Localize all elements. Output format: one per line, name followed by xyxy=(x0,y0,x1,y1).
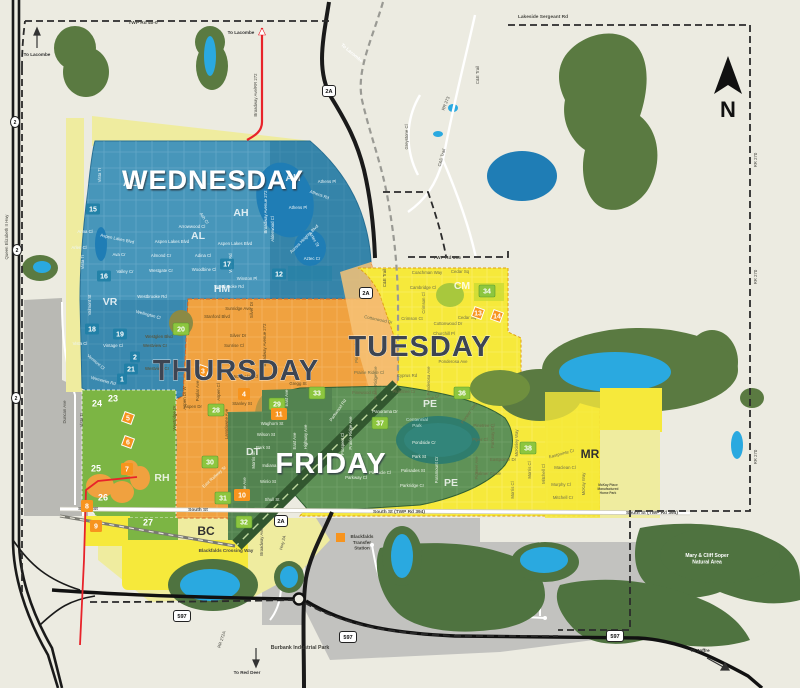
street-label: Arrowwood Cl xyxy=(179,224,206,229)
street-label: Vintage Cl xyxy=(103,343,123,348)
marker-number: 14 xyxy=(493,314,501,321)
street-label: Valmont St xyxy=(87,294,92,316)
street-label: South St (TWP Rd 394) xyxy=(373,509,425,515)
street-label: Silver Dr xyxy=(230,333,247,338)
street-label: Greystone Cl xyxy=(404,124,409,149)
street-label: Murphy Cl xyxy=(551,482,571,487)
street-label: Broadway Ave/RR 272 xyxy=(253,73,258,117)
street-label: Vista Cl xyxy=(73,341,88,346)
marker-number: 17 xyxy=(223,262,231,269)
marker-number: 10 xyxy=(238,493,246,500)
street-label: Plumtree Cr xyxy=(393,389,416,394)
street-label: Mitchell Cl xyxy=(541,464,546,484)
street-label: Park St xyxy=(412,454,427,459)
street-label: Duncan Ave xyxy=(62,400,67,424)
street-label: Sunridge Ave xyxy=(225,306,251,311)
street-label: Westglen Blvd xyxy=(145,334,173,339)
street-label: Stanley St xyxy=(232,401,252,406)
marker-number: 8 xyxy=(85,504,89,511)
street-label: Cambridge Cl xyxy=(410,285,436,290)
street-label: Mitchell Cr xyxy=(553,495,574,500)
street-label: Sunrise Cl xyxy=(224,343,244,348)
place-label: Natural Area xyxy=(692,559,722,565)
street-label: Broadway Ave xyxy=(259,528,264,556)
place-label: Centennial xyxy=(406,417,428,422)
street-label: Parkway Dr xyxy=(490,425,495,448)
area-code-label: PE xyxy=(444,477,458,489)
area-code-label: BC xyxy=(197,524,215,538)
marker-number: 32 xyxy=(240,520,248,527)
street-label: C&E Trail xyxy=(475,66,480,84)
street-label: Ava Cr xyxy=(112,252,126,257)
street-label: Piper Cl xyxy=(472,437,487,442)
street-label: Stanford Blvd xyxy=(204,314,230,319)
marker-number: 38 xyxy=(524,446,532,453)
marker-number: 11 xyxy=(275,412,283,419)
street-label: RR 270 xyxy=(753,269,758,284)
street-label: Adina Cl xyxy=(195,253,211,258)
street-label: Crimson Ct xyxy=(401,316,423,321)
marker-number: 20 xyxy=(177,327,185,334)
street-label: Aztec Cr xyxy=(304,256,321,261)
marker-number: 5 xyxy=(126,416,130,423)
street-label: Westridge Dr xyxy=(172,405,177,431)
street-label: Blackfalds Crossing Way xyxy=(199,548,254,553)
transfer-station-icon xyxy=(336,533,345,542)
marker-number: 30 xyxy=(206,460,214,467)
street-label: Silver Dr xyxy=(249,301,254,318)
street-label: McKay Way xyxy=(581,472,586,496)
street-label: Cyprus Rd xyxy=(397,373,418,378)
street-label: Maclean Cl xyxy=(554,465,576,470)
marker-number: 1 xyxy=(120,377,124,384)
direction-label: To Lacombe xyxy=(228,30,255,35)
street-label: Prairie Ridge Ave xyxy=(373,366,378,400)
marker-number: 33 xyxy=(313,391,321,398)
collection-day-label: WEDNESDAY xyxy=(122,165,304,195)
street-label: RR 270 xyxy=(753,449,758,464)
street-label: Prairie Ridge Ave xyxy=(348,416,353,450)
street-label: Palmer Circle xyxy=(475,471,501,476)
street-label: Almond Cr xyxy=(151,253,172,258)
area-code-label: PE xyxy=(423,398,437,410)
street-label: Woodbine Cl xyxy=(192,267,217,272)
street-label: RR 270 xyxy=(753,152,758,167)
street-label: Panorama Dr xyxy=(372,409,398,414)
street-label: Alderwood Cl xyxy=(270,216,275,242)
marker-number: 7 xyxy=(125,467,129,474)
marker-number: 6 xyxy=(126,440,130,447)
street-label: Pondside Cr xyxy=(412,440,436,445)
street-label: Westview Cr xyxy=(143,343,168,348)
street-label: South St xyxy=(188,507,208,513)
place-label: Transfer xyxy=(353,540,371,545)
street-label: Prairie Ridge Cl xyxy=(354,370,384,375)
street-label: Coachman Way xyxy=(412,270,443,275)
highway-shield-number: 2 xyxy=(15,396,18,402)
compass-label: N xyxy=(720,97,736,122)
street-label: Palisades St xyxy=(401,468,426,473)
area-code-label: HM xyxy=(214,283,231,295)
collection-day-label: THURSDAY xyxy=(153,355,319,387)
street-label: Highway Ave xyxy=(303,424,308,449)
street-label: Valley Cr xyxy=(116,269,134,274)
direction-label: To Red Deer xyxy=(234,670,261,675)
place-label: Park xyxy=(412,423,422,428)
marker-number: 26 xyxy=(98,493,108,503)
marker-number: 12 xyxy=(275,272,283,279)
marker-number: 16 xyxy=(100,274,108,281)
highway-shield-number: 2 xyxy=(14,120,17,126)
street-label: Aspen Lakes Blvd xyxy=(218,241,253,246)
highway-shield-number: 2 xyxy=(16,248,19,254)
marker-number: 23 xyxy=(108,394,118,404)
marker-number: 25 xyxy=(91,464,101,474)
street-label: Aspen Dr W xyxy=(182,385,187,409)
street-label: TWP Rd 40-0 xyxy=(128,20,158,26)
collection-schedule-map: N Vista TrAnna ClArlen ClAspen Lakes Blv… xyxy=(0,0,800,688)
street-label: South St (TWP Rd 394) xyxy=(626,510,678,516)
area-code-label: MR xyxy=(581,447,600,461)
street-label: Vista Tr xyxy=(79,412,84,427)
street-label: Westbrooke Rd xyxy=(137,294,167,299)
place-label: Burbank Industrial Park xyxy=(271,645,330,651)
marker-number: 9 xyxy=(94,524,98,531)
marker-number: 31 xyxy=(219,496,227,503)
area-code-label: RH xyxy=(154,472,169,484)
place-label: Station xyxy=(354,546,370,551)
street-label: Cedar Sq xyxy=(451,269,470,274)
street-label: Athens Pl xyxy=(318,179,336,184)
highway-shield-number: 597 xyxy=(610,634,619,640)
area-code-label: AL xyxy=(191,230,206,242)
area-code-label: AH xyxy=(233,207,248,219)
street-label: Waghorn St xyxy=(261,421,284,426)
map-canvas: N Vista TrAnna ClArlen ClAspen Lakes Blv… xyxy=(0,0,800,688)
place-label: Home Park xyxy=(600,491,617,495)
direction-label: To Joffre xyxy=(690,648,710,653)
street-label: C&E Trail xyxy=(382,269,387,287)
marker-number: 19 xyxy=(116,332,124,339)
highway-shield-number: 2A xyxy=(277,519,284,525)
street-label: Parkridge Cr xyxy=(400,483,425,488)
street-label: Lansdowne Ave xyxy=(224,408,229,439)
marker-number: 2 xyxy=(133,355,137,362)
marker-number: 36 xyxy=(458,391,466,398)
street-label: Shull St xyxy=(265,497,281,502)
highway-shield-number: 2A xyxy=(325,89,332,95)
street-label: Vista Tr xyxy=(80,254,85,269)
street-label: East Ave xyxy=(292,432,297,449)
marker-number: 4 xyxy=(242,392,246,399)
street-label: Ponderosa Ave xyxy=(426,366,431,396)
highway-shield-number: 2A xyxy=(362,291,369,297)
street-label: Lakeside Sergeant Rd xyxy=(518,14,568,20)
street-label: Anna Cl xyxy=(77,229,92,234)
marker-number: 34 xyxy=(483,289,491,296)
street-label: Broadway Avenue 272 xyxy=(263,190,268,234)
marker-number: 21 xyxy=(127,367,135,374)
street-label: Vista Tr xyxy=(97,167,102,182)
street-label: Wilson St xyxy=(257,432,276,437)
marker-number: 27 xyxy=(143,518,153,528)
marker-number: 29 xyxy=(273,402,281,409)
marker-number: 28 xyxy=(212,408,220,415)
marker-number: 15 xyxy=(89,207,97,214)
place-label: Mary & Cliff Soper xyxy=(685,553,728,559)
area-code-label: VR xyxy=(103,296,118,308)
street-label: Athens Pl xyxy=(289,205,307,210)
street-label: Eastpointe Dr xyxy=(490,457,517,462)
street-label: Winlo St xyxy=(260,479,277,484)
street-label: Winston Pl xyxy=(237,276,258,281)
street-label: McKinley Way xyxy=(514,429,519,457)
street-label: Morris Cl xyxy=(527,461,532,478)
highway-shield-number: 597 xyxy=(177,614,186,620)
street-label: TWP Rd 395 xyxy=(433,255,461,261)
collection-day-label: TUESDAY xyxy=(349,331,492,363)
direction-label: To Lacombe xyxy=(24,52,51,57)
street-label: Crimson Cl xyxy=(421,292,426,313)
street-label: Arlen Cl xyxy=(71,245,86,250)
marker-number: 24 xyxy=(92,399,102,409)
highway-shield-number: 597 xyxy=(343,635,352,641)
street-label: Morris Cl xyxy=(510,481,515,498)
street-label: Paramount Cr xyxy=(434,456,439,483)
area-code-label: CM xyxy=(454,280,471,292)
street-label: Cottonwood Dr xyxy=(434,321,463,326)
marker-number: 13 xyxy=(474,311,482,318)
marker-number: 37 xyxy=(376,421,384,428)
marker-number: 18 xyxy=(88,327,96,334)
street-label: Westgate Cr xyxy=(149,268,173,273)
street-label: Aspen Lakes Blvd xyxy=(155,239,190,244)
street-label: Queen Elizabeth II Hwy xyxy=(4,214,9,260)
collection-day-label: FRIDAY xyxy=(275,448,386,480)
area-code-label: DT xyxy=(246,446,261,458)
place-label: Blackfalds xyxy=(351,534,374,539)
